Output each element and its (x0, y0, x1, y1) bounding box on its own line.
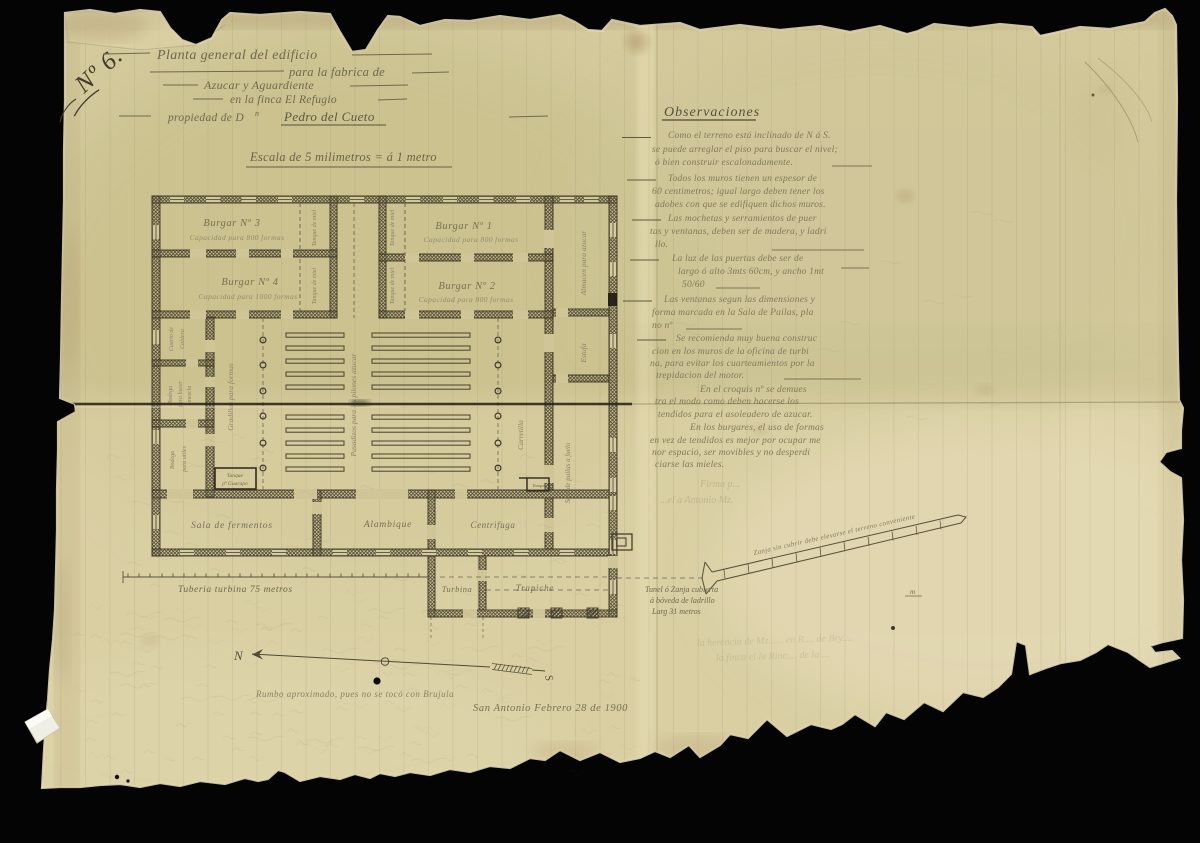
svg-text:Burgar Nº 3: Burgar Nº 3 (203, 218, 260, 229)
svg-text:trepidacion del motor.: trepidacion del motor. (656, 371, 744, 381)
svg-text:Tanque de miel: Tanque de miel (390, 267, 396, 304)
svg-text:Almacen para azucar: Almacen para azucar (579, 231, 588, 297)
svg-text:Observaciones: Observaciones (664, 105, 760, 120)
svg-text:Tanque: Tanque (532, 483, 545, 488)
svg-text:propiedad de D: propiedad de D (167, 112, 244, 124)
svg-text:60 centimetros; igual largo de: 60 centimetros; igual largo deben tener … (652, 187, 825, 197)
svg-text:n: n (255, 109, 259, 118)
svg-text:Como el terreno está inclinado: Como el terreno está inclinado de N á S. (668, 131, 831, 141)
svg-text:Cuarto de: Cuarto de (169, 327, 175, 352)
svg-text:tas y ventanas, deben ser de m: tas y ventanas, deben ser de madera, y l… (650, 227, 827, 237)
svg-text:adobes con que se edifiquen di: adobes con que se edifiquen dichos muros… (655, 199, 826, 210)
svg-text:para la fabrica de: para la fabrica de (288, 65, 385, 79)
svg-text:largo ó alto 3mts 60cm, y anch: largo ó alto 3mts 60cm, y ancho 1mt (678, 267, 824, 277)
svg-text:tra el modo como deben hacerse: tra el modo como deben hacerse los (655, 397, 799, 407)
svg-text:cion en los muros de la oficin: cion en los muros de la oficina de turbi (652, 346, 809, 357)
svg-text:Planta general del edificio: Planta general del edificio (156, 48, 318, 63)
svg-text:Azucar y Aguardiente: Azucar y Aguardiente (203, 78, 314, 92)
svg-text:Estufa: Estufa (579, 343, 588, 363)
svg-text:50/60: 50/60 (682, 280, 705, 290)
svg-text:Trapiche: Trapiche (516, 583, 554, 593)
svg-text:Firma p...: Firma p... (699, 479, 740, 490)
svg-text:Capacidad para 800 formas: Capacidad para 800 formas (419, 295, 514, 304)
svg-text:no nº: no nº (652, 321, 673, 331)
svg-text:para utiles: para utiles (182, 445, 188, 472)
svg-text:En los burgares, el uso de for: En los burgares, el uso de formas (689, 422, 824, 433)
svg-text:...el a Antonio Mz.: ...el a Antonio Mz. (660, 495, 733, 506)
svg-text:Alambique: Alambique (363, 520, 412, 530)
svg-text:Burgar Nº 4: Burgar Nº 4 (221, 277, 278, 288)
svg-text:á bóveda de ladrillo: á bóveda de ladrillo (650, 596, 715, 605)
svg-text:Capacidad para 1000 formas: Capacidad para 1000 formas (199, 292, 298, 301)
svg-text:en vez de tendidos es mejor po: en vez de tendidos es mejor por ocupar m… (650, 436, 821, 446)
svg-text:Todos los muros tienen un espe: Todos los muros tienen un espesor de (668, 174, 817, 184)
svg-text:nor espacio, ser movibles y no: nor espacio, ser movibles y no desperdi (652, 448, 810, 458)
svg-text:Sala de fermentos: Sala de fermentos (191, 520, 273, 531)
svg-text:Las mochetas y serramientos de: Las mochetas y serramientos de puer (667, 214, 817, 224)
svg-text:Caldera: Caldera (180, 329, 186, 349)
svg-text:Turbina: Turbina (442, 584, 472, 594)
svg-text:forma marcada en la Sala de Pa: forma marcada en la Sala de Pailas, pla (652, 307, 814, 318)
svg-text:N: N (233, 648, 244, 663)
svg-text:Tanque: Tanque (227, 473, 244, 479)
svg-text:Se recomienda muy buena constr: Se recomienda muy buena construc (676, 334, 818, 344)
svg-text:Tanque de miel: Tanque de miel (312, 267, 318, 304)
svg-text:na, para evitar los cuarteamie: na, para evitar los cuarteamientos por l… (650, 359, 815, 369)
svg-text:Burgar Nº 1: Burgar Nº 1 (435, 221, 492, 232)
svg-text:Centrifuga: Centrifuga (470, 520, 515, 530)
svg-text:Sala de pailas a fuelo: Sala de pailas a fuelo (564, 442, 572, 503)
svg-text:mezcla: mezcla (187, 386, 193, 403)
svg-text:Gradillas para formas: Gradillas para formas (226, 363, 235, 431)
svg-text:pª Guarapo: pª Guarapo (221, 481, 248, 487)
svg-text:Pedro del Cueto: Pedro del Cueto (283, 109, 375, 124)
svg-text:Tanque de miel: Tanque de miel (312, 209, 318, 246)
svg-text:Larg 31 metros: Larg 31 metros (651, 607, 701, 616)
svg-text:en la finca El Refugio: en la finca El Refugio (230, 94, 337, 106)
svg-text:llo.: llo. (655, 240, 668, 250)
svg-text:En el croquis nº se demue: En el croquis nº se demues (699, 385, 807, 395)
svg-text:Burgar Nº 2: Burgar Nº 2 (438, 281, 495, 292)
svg-text:se puede arreglar el piso para: se puede arreglar el piso para buscar el… (652, 145, 838, 155)
svg-text:Capacidad para 800 formas: Capacidad para 800 formas (424, 235, 519, 244)
svg-text:Tunel ó Zanja cubierta: Tunel ó Zanja cubierta (645, 585, 718, 594)
svg-text:ciarse las mieles.: ciarse las mieles. (655, 460, 724, 470)
svg-text:Las ventanas segun las dimensi: Las ventanas segun las dimensiones y (663, 295, 816, 305)
svg-text:ó bien construir escalonadamen: ó bien construir escalonadamente. (655, 158, 793, 168)
svg-text:Tanque de miel: Tanque de miel (390, 209, 396, 246)
svg-text:Bodega: Bodega (170, 451, 176, 469)
svg-text:Carretilla: Carretilla (516, 420, 525, 450)
svg-text:Capacidad para 800 formas: Capacidad para 800 formas (190, 233, 285, 242)
svg-text:m: m (910, 588, 915, 596)
svg-text:La luz de las puertas debe ser: La luz de las puertas debe ser de (671, 254, 803, 264)
svg-text:Escala de 5 milimetros = á 1 m: Escala de 5 milimetros = á 1 metro (249, 150, 437, 164)
svg-text:Bodega: Bodega (168, 386, 174, 404)
svg-text:tendidos para el asoleadero de: tendidos para el asoleadero de azucar. (658, 410, 812, 420)
